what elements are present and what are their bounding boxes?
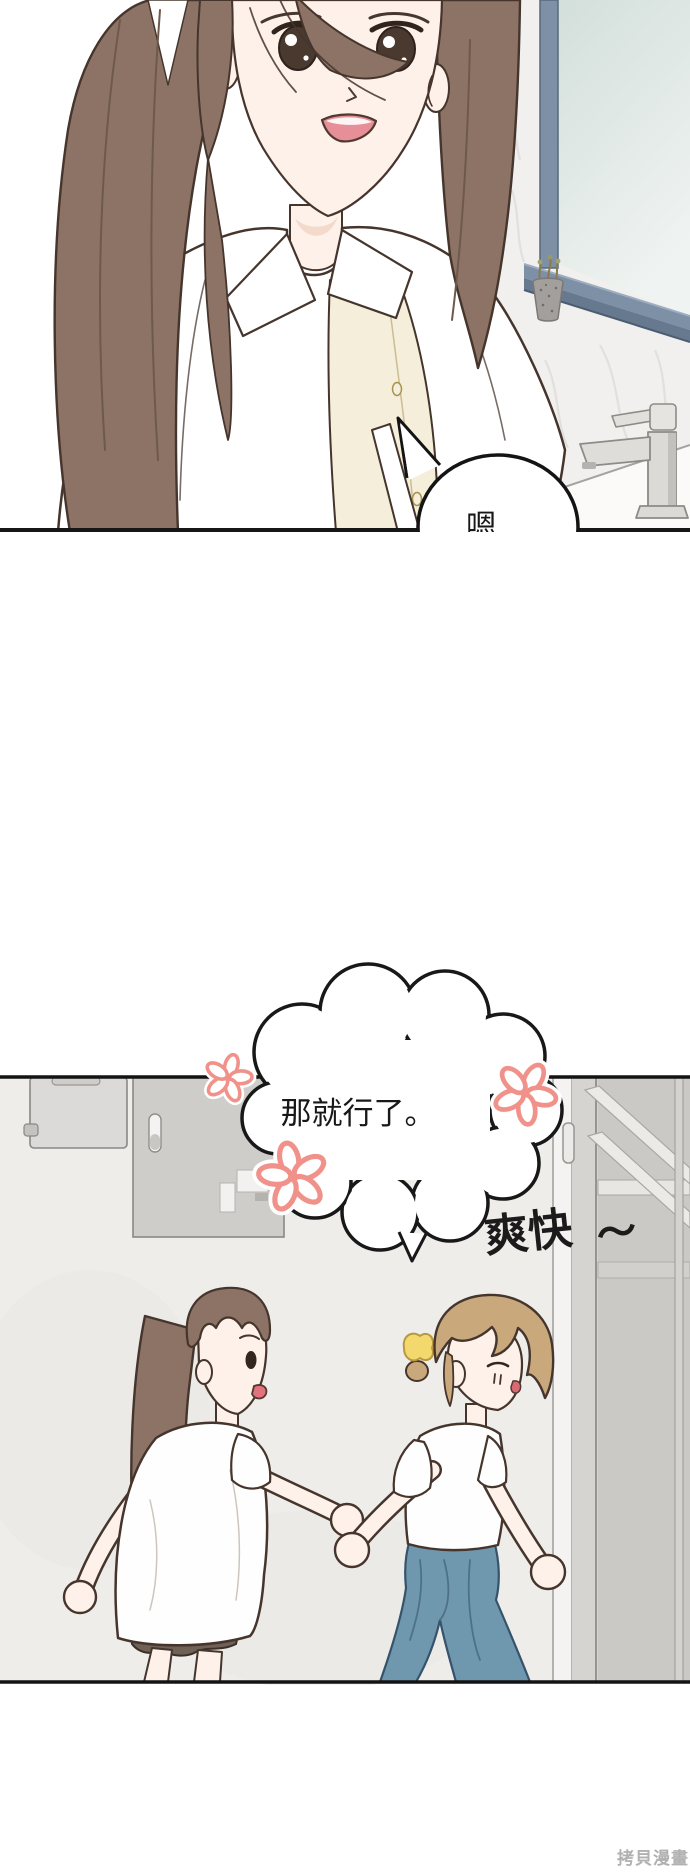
joined-hands	[335, 1533, 369, 1567]
girl2-hair-bun	[406, 1361, 428, 1381]
girl1-ear	[196, 1360, 212, 1384]
door-frame	[553, 1077, 690, 1682]
sfx-text: 爽快	[482, 1203, 576, 1263]
panel-hallway: 那就行了。	[0, 960, 690, 1685]
door-handle	[563, 1123, 574, 1163]
shirt-button	[393, 383, 402, 396]
girl1-eye	[246, 1351, 257, 1369]
window-glass	[558, 0, 690, 316]
girl2-mouth	[511, 1381, 521, 1393]
panel-bathroom: 嗯…	[0, 0, 690, 532]
girl1-mouth	[252, 1385, 266, 1399]
shirt-button	[413, 493, 422, 506]
watermark: 拷貝漫畫	[617, 1844, 689, 1869]
cloud-bubble-text: 那就行了。	[281, 1096, 436, 1132]
fusebox-small	[24, 1077, 127, 1148]
girl1-left-hand	[64, 1581, 96, 1613]
speech-bubble-text: 嗯…	[466, 509, 528, 532]
girl2-right-hand	[531, 1555, 565, 1589]
girl2-hair-clip	[404, 1334, 433, 1361]
comic-page: 嗯…	[0, 0, 690, 1874]
window-frame-bar	[540, 0, 558, 268]
woman-figure	[55, 0, 565, 532]
fusebox-latch	[24, 1124, 38, 1136]
girl1-leg	[194, 1650, 222, 1682]
